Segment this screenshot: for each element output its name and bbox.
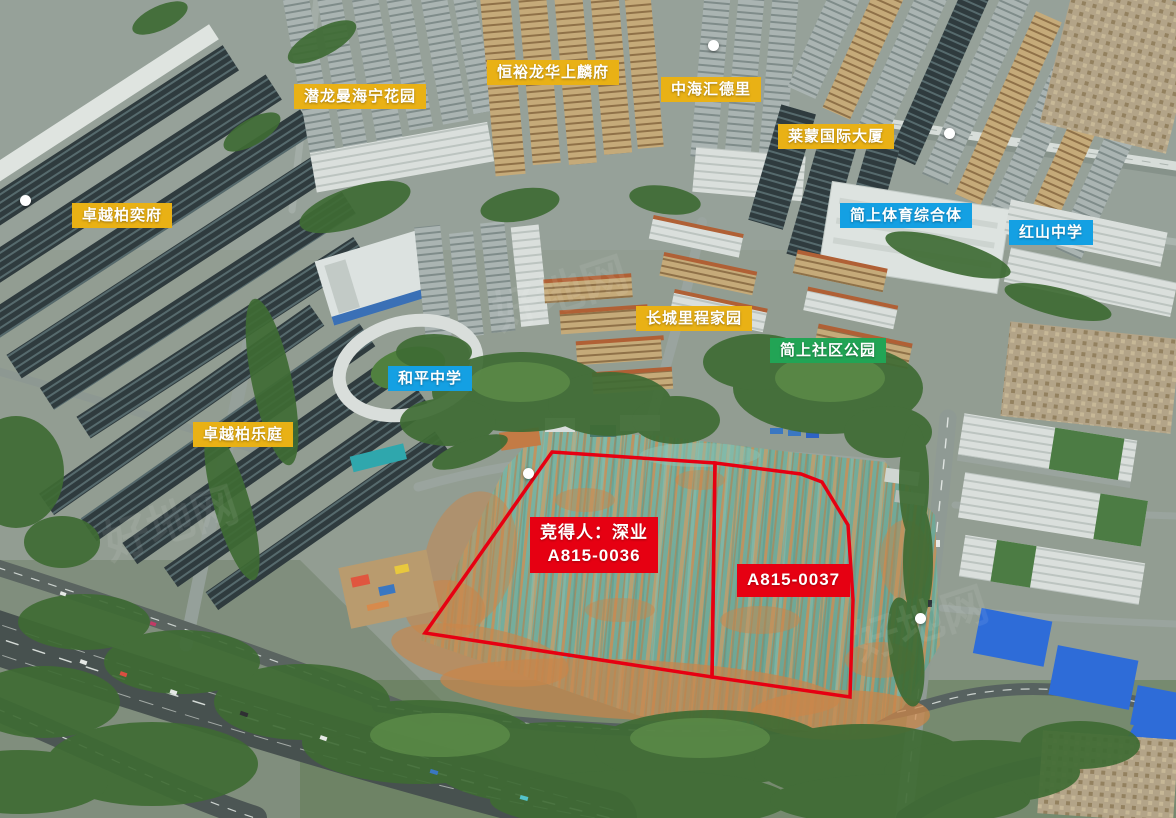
parcel-a815-0037-label: A815-0037 [737, 564, 850, 597]
parcel-a815-0036-label: 竞得人：深业 A815-0036 [530, 517, 658, 573]
label-changcheng-licheng-jiayuan: 长城里程家园 [636, 306, 752, 331]
label-zhuoyue-boleting: 卓越柏乐庭 [193, 422, 293, 447]
label-heping-middle-school: 和平中学 [388, 366, 472, 391]
label-laimeng-international-tower: 莱蒙国际大厦 [778, 124, 894, 149]
label-zhuoyue-boyifu: 卓越柏奕府 [72, 203, 172, 228]
marker-dot [944, 128, 955, 139]
marker-dot [20, 195, 31, 206]
parcel-a-number: A815-0036 [540, 545, 648, 568]
urban-village-east [1000, 321, 1176, 433]
label-jianshang-community-park: 简上社区公园 [770, 338, 886, 363]
marker-dot [915, 613, 926, 624]
aerial-photo-background: 好地网 好地网 好地网 [0, 0, 1176, 818]
label-hongshan-middle-school: 红山中学 [1009, 220, 1093, 245]
marker-dot [708, 40, 719, 51]
label-qianlong-manhaining-garden: 潜龙曼海宁花园 [294, 84, 426, 109]
label-hengyu-longhua-shanglinfu: 恒裕龙华上麟府 [487, 60, 619, 85]
parcel-winner-line: 竞得人：深业 [540, 522, 648, 545]
label-zhonghai-huideli: 中海汇德里 [661, 77, 761, 102]
marker-dot [523, 468, 534, 479]
east-office-complex [939, 413, 1164, 605]
annotated-aerial-map: 好地网 好地网 好地网 潜龙曼海宁花园 恒裕龙华上麟府 中海汇德里 莱蒙国际大厦… [0, 0, 1176, 818]
label-jianshang-sports-complex: 简上体育综合体 [840, 203, 972, 228]
